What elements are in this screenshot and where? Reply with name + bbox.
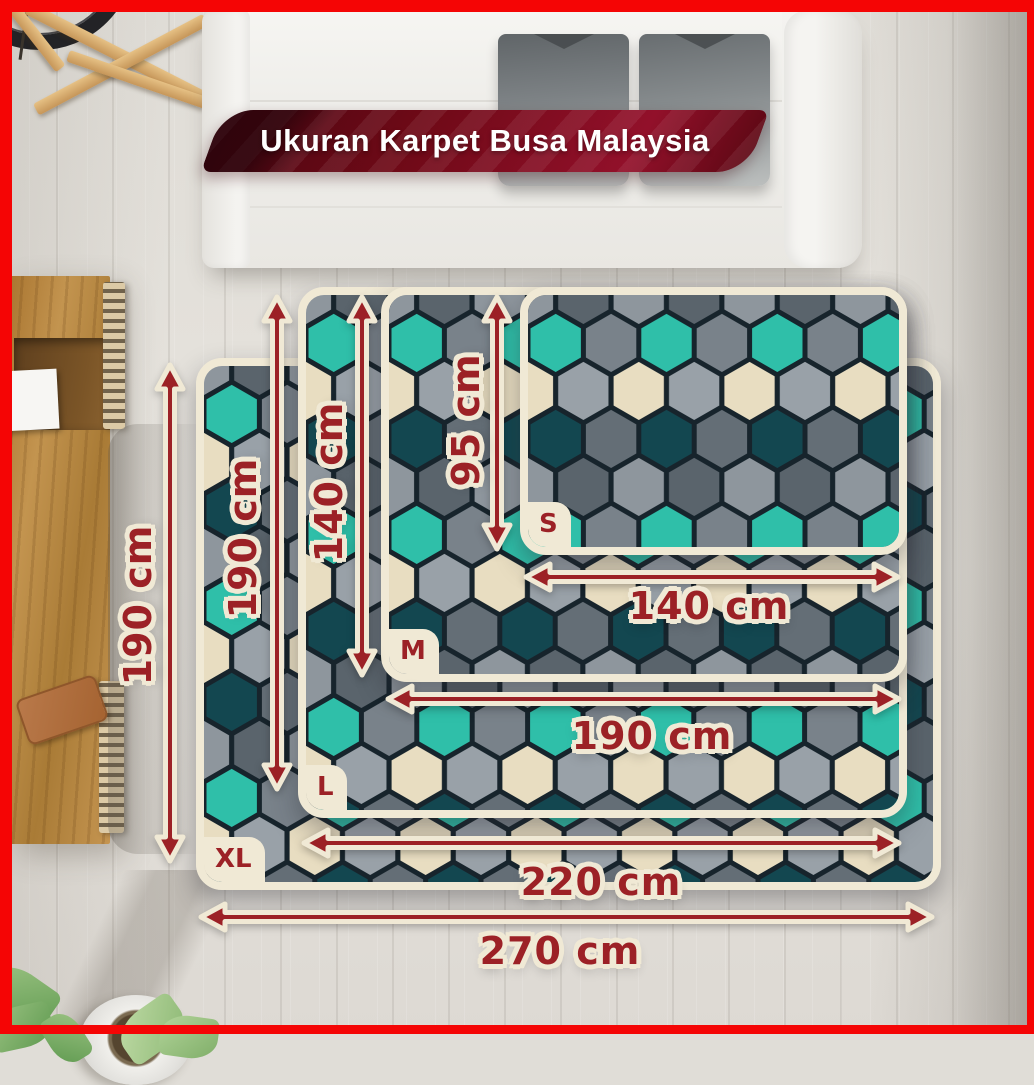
dim-label-s-width: 140 cm xyxy=(629,587,790,625)
rug-s-pattern xyxy=(528,295,899,547)
dim-label-m-height: 140 cm xyxy=(310,402,348,563)
dim-label-l-width: 220 cm xyxy=(521,863,682,901)
floor-right-shading xyxy=(947,12,1027,1025)
size-tag-l: L xyxy=(306,765,347,810)
size-tag-m: M xyxy=(389,629,439,674)
dim-label-xl-height: 190 cm xyxy=(119,525,157,686)
size-tag-xl: XL xyxy=(204,837,265,882)
dim-label-xl-width: 270 cm xyxy=(480,932,641,970)
rattan-slats xyxy=(103,282,125,429)
wood-side-table xyxy=(6,276,110,844)
size-tag-s: S xyxy=(528,502,571,547)
sofa-seam xyxy=(250,206,782,208)
dim-label-m-width: 190 cm xyxy=(572,717,733,755)
dim-label-s-height: 95 cm xyxy=(447,353,485,486)
sofa-armrest-right xyxy=(784,10,862,268)
white-paper xyxy=(0,369,59,432)
rug-s: S xyxy=(520,287,907,555)
banner-title: Ukuran Karpet Busa Malaysia xyxy=(212,110,758,172)
title-banner: Ukuran Karpet Busa Malaysia xyxy=(212,110,758,172)
dim-arrow-l-height xyxy=(260,294,294,797)
dim-label-l-height: 190 cm xyxy=(224,458,262,619)
